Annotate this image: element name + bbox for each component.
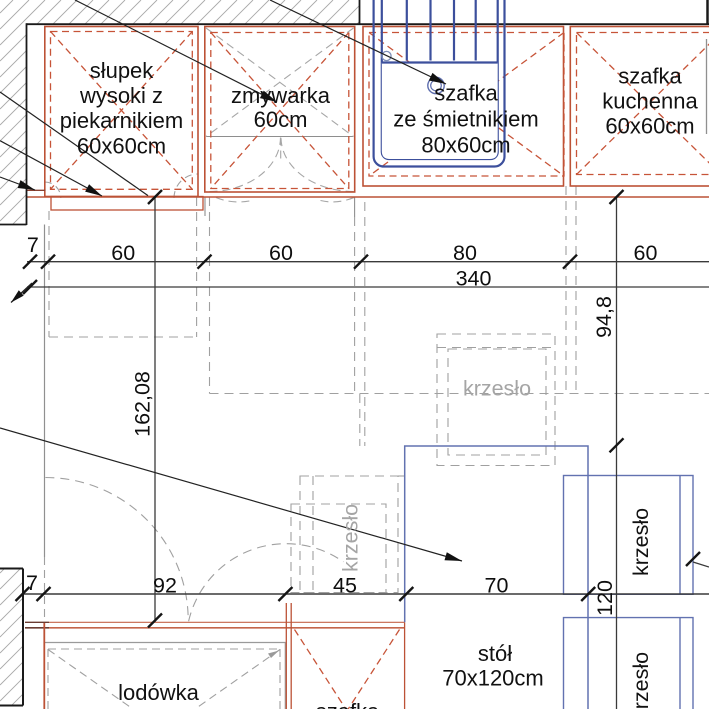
- svg-text:120: 120: [593, 580, 617, 616]
- svg-text:7: 7: [26, 571, 38, 595]
- svg-text:krzesło: krzesło: [629, 508, 653, 576]
- svg-text:krzesło: krzesło: [629, 652, 653, 709]
- svg-text:80: 80: [453, 241, 477, 265]
- svg-text:szafka: szafka: [316, 699, 380, 709]
- svg-text:wysoki z: wysoki z: [79, 83, 163, 108]
- svg-text:162,08: 162,08: [131, 371, 155, 437]
- svg-text:zmywarka: zmywarka: [231, 83, 331, 108]
- svg-text:słupek: słupek: [90, 58, 155, 83]
- svg-text:92: 92: [153, 573, 177, 597]
- svg-text:lodówka: lodówka: [118, 680, 199, 705]
- svg-text:piekarnikiem: piekarnikiem: [60, 108, 184, 133]
- svg-text:szafka: szafka: [618, 64, 682, 89]
- svg-text:kuchenna: kuchenna: [602, 89, 698, 114]
- svg-text:60: 60: [634, 241, 658, 265]
- svg-text:ze śmietnikiem: ze śmietnikiem: [393, 107, 538, 132]
- svg-text:krzesło: krzesło: [339, 504, 363, 572]
- svg-text:szafka: szafka: [434, 81, 498, 106]
- svg-text:70x120cm: 70x120cm: [442, 666, 544, 691]
- svg-text:45: 45: [333, 573, 357, 597]
- svg-text:60: 60: [111, 241, 135, 265]
- svg-text:stół: stół: [478, 641, 512, 666]
- svg-text:70: 70: [485, 573, 509, 597]
- svg-text:60x60cm: 60x60cm: [77, 134, 166, 159]
- svg-text:80x60cm: 80x60cm: [421, 133, 510, 158]
- svg-text:krzesło: krzesło: [463, 377, 531, 401]
- svg-text:60: 60: [269, 241, 293, 265]
- svg-text:60cm: 60cm: [254, 107, 308, 132]
- svg-text:94,8: 94,8: [592, 296, 616, 338]
- svg-text:60x60cm: 60x60cm: [605, 114, 694, 139]
- svg-text:7: 7: [27, 233, 39, 257]
- svg-text:340: 340: [456, 266, 492, 290]
